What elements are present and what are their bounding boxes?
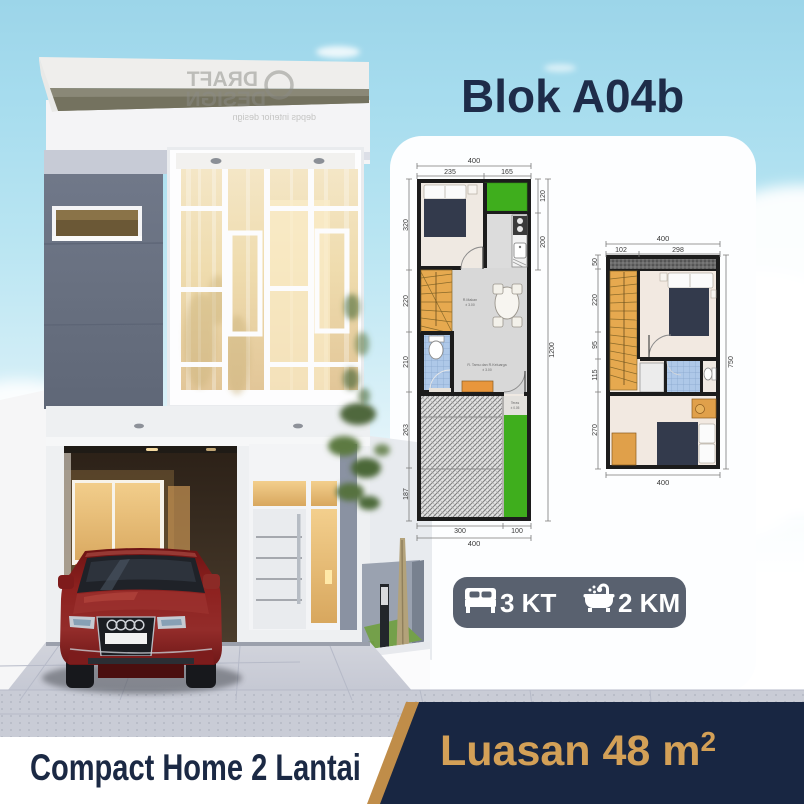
svg-text:235: 235	[444, 169, 456, 176]
svg-text:depqs interior design: depqs interior design	[232, 112, 316, 122]
svg-text:165: 165	[501, 169, 513, 176]
svg-text:95: 95	[592, 341, 599, 349]
svg-text:220: 220	[403, 295, 410, 307]
svg-text:100: 100	[511, 528, 523, 535]
svg-text:115: 115	[592, 369, 599, 380]
svg-text:R.Makan: R.Makan	[463, 298, 477, 302]
svg-text:DESIGN: DESIGN	[185, 88, 266, 111]
svg-text:1200: 1200	[549, 342, 556, 358]
svg-text:± 3.00: ± 3.00	[465, 303, 475, 307]
svg-text:102: 102	[615, 247, 627, 254]
svg-text:300: 300	[454, 528, 466, 535]
svg-text:270: 270	[592, 424, 599, 436]
svg-text:Teras: Teras	[511, 401, 520, 405]
svg-text:400: 400	[657, 234, 670, 243]
svg-text:400: 400	[468, 539, 481, 548]
svg-text:120: 120	[540, 190, 547, 202]
svg-text:400: 400	[657, 478, 670, 487]
svg-text:± 0.05: ± 0.05	[511, 406, 520, 410]
svg-text:220: 220	[592, 294, 599, 306]
svg-text:400: 400	[468, 156, 481, 165]
svg-text:210: 210	[403, 356, 410, 368]
svg-text:50: 50	[592, 258, 599, 266]
svg-text:263: 263	[403, 424, 410, 436]
svg-text:320: 320	[403, 219, 410, 231]
svg-text:750: 750	[728, 356, 735, 368]
svg-text:298: 298	[672, 247, 684, 254]
svg-text:R. Tamu dan R.Keluarga: R. Tamu dan R.Keluarga	[467, 363, 506, 367]
svg-text:3 KT: 3 KT	[500, 588, 556, 618]
svg-text:200: 200	[540, 236, 547, 248]
svg-text:2 KM: 2 KM	[618, 588, 680, 618]
svg-text:187: 187	[403, 488, 410, 500]
svg-text:± 3.00: ± 3.00	[482, 368, 492, 372]
